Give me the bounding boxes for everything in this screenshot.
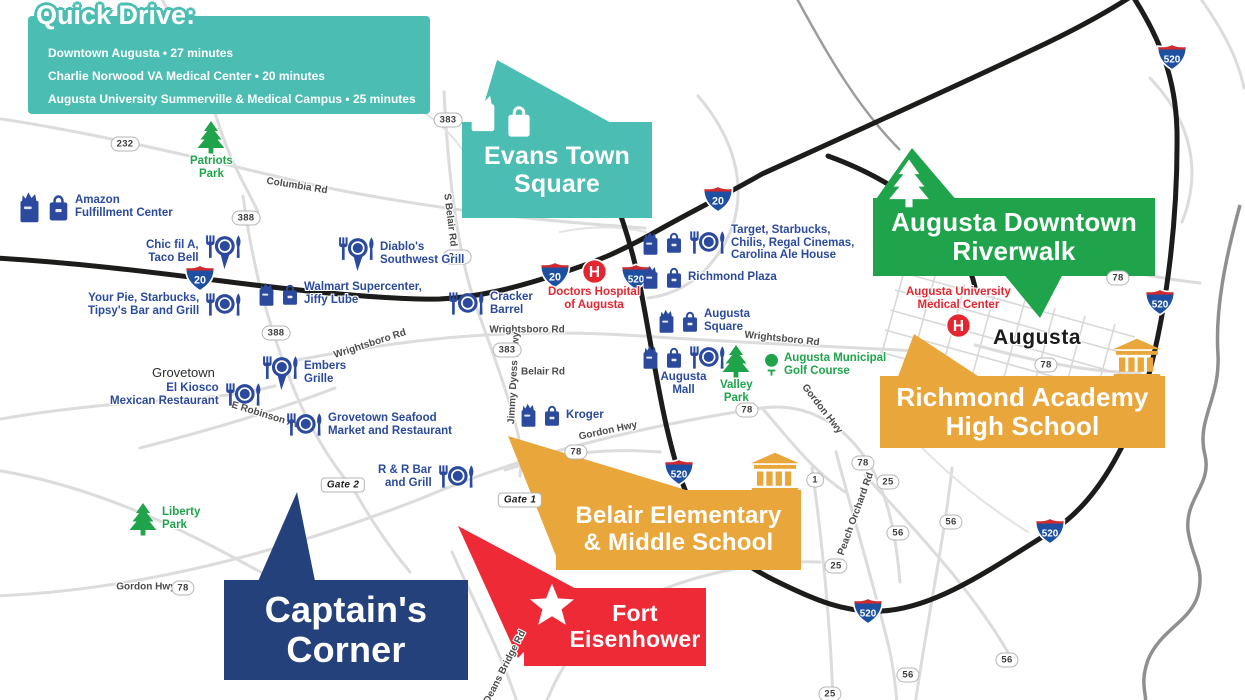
svg-text:520: 520 bbox=[671, 469, 688, 480]
poi-augusta-square: AugustaSquare bbox=[656, 308, 750, 334]
restaurant-icon bbox=[436, 464, 476, 489]
quick-drive-item: Augusta University Summerville & Medical… bbox=[48, 88, 430, 111]
road-label: Gordon Hwy bbox=[116, 582, 175, 593]
interstate-shield-520: 520 bbox=[663, 458, 696, 487]
poi-label: AugustaMall bbox=[661, 371, 707, 396]
poi-icons bbox=[203, 234, 243, 270]
poi-label: Augusta UniversityMedical Center bbox=[906, 286, 1011, 311]
poi-icons bbox=[196, 120, 226, 154]
svg-text:20: 20 bbox=[194, 274, 206, 286]
shopping-icon bbox=[46, 193, 71, 222]
school-icon bbox=[1110, 338, 1164, 380]
route-pill-78: 78 bbox=[851, 456, 874, 471]
shopping-icon bbox=[664, 346, 684, 369]
poi-label: Augusta MunicipalGolf Course bbox=[784, 352, 886, 377]
poi-icons bbox=[223, 382, 263, 407]
road-label: Wrightsboro Rd bbox=[489, 325, 564, 336]
grocery-icon bbox=[16, 190, 43, 224]
hospital-icon: H bbox=[945, 312, 972, 339]
poi-icons bbox=[336, 236, 376, 272]
poi-icons bbox=[436, 464, 476, 489]
svg-text:H: H bbox=[953, 318, 964, 335]
poi-grovetown-seafood-market: Grovetown SeafoodMarket and Restaurant bbox=[284, 412, 452, 437]
road-label: Belair Rd bbox=[521, 367, 565, 378]
riverwalk-callout-tail bbox=[1002, 272, 1064, 318]
route-pill-78: 78 bbox=[735, 403, 758, 418]
quick-drive-item: Charlie Norwood VA Medical Center • 20 m… bbox=[48, 65, 430, 88]
route-pill-1: 1 bbox=[806, 473, 824, 488]
gate-pill-gate-2: Gate 2 bbox=[321, 478, 365, 493]
poi-valley-park: ValleyPark bbox=[720, 344, 753, 404]
interstate-shield-20: 20 bbox=[702, 185, 735, 214]
restaurant-icon bbox=[223, 382, 263, 407]
poi-icons bbox=[518, 402, 562, 428]
restaurant-icon bbox=[284, 412, 324, 437]
callout-line: Augusta Downtown bbox=[873, 208, 1155, 237]
poi-doctors-hospital-of-augusta: HDoctors Hospitalof Augusta bbox=[548, 258, 640, 311]
poi-augusta-city: Augusta bbox=[993, 326, 1081, 349]
callout-line: Square bbox=[462, 170, 652, 198]
poi-diablos-southwest-grill: Diablo'sSouthwest Grill bbox=[336, 236, 464, 272]
callout-belair-elementary-middle-school: Belair Elementary & Middle School bbox=[556, 490, 801, 570]
poi-label: Target, Starbucks,Chilis, Regal Cinemas,… bbox=[731, 224, 854, 262]
restaurant-icon bbox=[203, 292, 243, 317]
callout-richmond-academy-high-school: Richmond Academy High School bbox=[880, 376, 1165, 448]
route-pill-25: 25 bbox=[824, 559, 847, 574]
route-pill-56: 56 bbox=[995, 653, 1018, 668]
callout-line: High School bbox=[880, 412, 1165, 441]
poi-icons bbox=[763, 353, 780, 377]
poi-icons bbox=[640, 230, 727, 256]
poi-augusta-municipal-golf-course: Augusta MunicipalGolf Course bbox=[763, 352, 886, 377]
route-pill-56: 56 bbox=[939, 515, 962, 530]
route-pill-383: 383 bbox=[434, 113, 463, 128]
poi-icons bbox=[16, 190, 71, 224]
interstate-shield-520: 520 bbox=[1156, 43, 1189, 72]
shopping-icon bbox=[504, 102, 534, 140]
poi-label: Kroger bbox=[566, 409, 604, 422]
grocery-icon bbox=[466, 90, 500, 134]
poi-patriots-park: PatriotsPark bbox=[190, 120, 233, 180]
route-pill-78: 78 bbox=[564, 445, 587, 460]
poi-label: Walmart Supercenter,Jiffy Lube bbox=[304, 281, 422, 306]
svg-text:20: 20 bbox=[712, 195, 724, 207]
svg-text:520: 520 bbox=[860, 608, 877, 619]
callout-line: Captain's bbox=[224, 590, 468, 630]
gate-pill-gate-1: Gate 1 bbox=[498, 493, 542, 508]
poi-icons bbox=[721, 344, 751, 378]
poi-kroger: Kroger bbox=[518, 402, 604, 428]
golf-icon bbox=[763, 353, 780, 377]
poi-cracker-barrel: CrackerBarrel bbox=[446, 291, 533, 316]
shopping-icon bbox=[664, 231, 684, 254]
interstate-shield-520: 520 bbox=[852, 597, 885, 626]
captains-callout-tail bbox=[256, 492, 316, 586]
poi-icons bbox=[656, 308, 700, 334]
poi-label: Richmond Plaza bbox=[688, 271, 777, 284]
map-canvas: Downtown Augusta • 27 minutes Charlie No… bbox=[0, 0, 1245, 700]
poi-icons bbox=[284, 412, 324, 437]
callout-captains-corner: Captain's Corner bbox=[224, 580, 468, 680]
poi-label: El KioscoMexican Restaurant bbox=[110, 382, 219, 407]
callout-line: Fort bbox=[564, 601, 706, 627]
poi-your-pie-starbucks-tipsys: Your Pie, Starbucks,Tipsy's Bar and Gril… bbox=[88, 292, 243, 317]
route-pill-56: 56 bbox=[886, 526, 909, 541]
tree-icon bbox=[886, 158, 932, 208]
poi-label: Doctors Hospitalof Augusta bbox=[548, 286, 640, 311]
route-pill-232: 232 bbox=[111, 137, 140, 152]
poi-label: EmbersGrille bbox=[304, 360, 346, 385]
restaurant-icon bbox=[446, 291, 486, 316]
poi-label: ValleyPark bbox=[720, 379, 753, 404]
grocery-icon bbox=[640, 230, 661, 256]
grocery-icon bbox=[640, 264, 661, 290]
poi-label: Your Pie, Starbucks,Tipsy's Bar and Gril… bbox=[88, 292, 199, 317]
callout-line: & Middle School bbox=[556, 530, 801, 557]
callout-line: Riverwalk bbox=[873, 237, 1155, 266]
route-pill-78: 78 bbox=[1106, 271, 1129, 286]
svg-text:520: 520 bbox=[1152, 299, 1169, 310]
quick-drive-title: Quick Drive: bbox=[36, 0, 195, 31]
svg-text:520: 520 bbox=[1042, 528, 1059, 539]
poi-chic-fil-a-taco-bell: Chic fil A,Taco Bell bbox=[146, 234, 243, 270]
callout-line: Belair Elementary bbox=[556, 503, 801, 530]
poi-label: LibertyPark bbox=[162, 506, 200, 531]
callout-line: Eisenhower bbox=[564, 627, 706, 653]
poi-r-and-r-bar-and-grill: R & R Barand Grill bbox=[378, 464, 476, 489]
grocery-icon bbox=[256, 281, 277, 307]
poi-icons bbox=[256, 281, 300, 307]
route-pill-25: 25 bbox=[818, 687, 841, 700]
route-pill-78: 78 bbox=[171, 581, 194, 596]
callout-augusta-downtown-riverwalk: Augusta Downtown Riverwalk bbox=[873, 198, 1155, 276]
poi-liberty-park: LibertyPark bbox=[128, 502, 200, 536]
grocery-icon bbox=[640, 344, 661, 370]
grocery-icon bbox=[518, 402, 539, 428]
poi-label: AugustaSquare bbox=[704, 308, 750, 333]
poi-icons: H bbox=[945, 312, 972, 339]
poi-icons bbox=[640, 344, 727, 370]
poi-label: Grovetown SeafoodMarket and Restaurant bbox=[328, 412, 452, 437]
poi-label: Grovetown bbox=[152, 366, 215, 380]
tree-icon bbox=[721, 344, 751, 378]
tree-icon bbox=[128, 502, 158, 536]
tree-icon bbox=[196, 120, 226, 154]
poi-target-starbucks-chilis: Target, Starbucks,Chilis, Regal Cinemas,… bbox=[640, 224, 854, 262]
school-icon bbox=[748, 452, 802, 494]
poi-label: Chic fil A,Taco Bell bbox=[146, 239, 199, 264]
svg-text:520: 520 bbox=[1164, 54, 1181, 65]
shopping-icon bbox=[280, 283, 300, 306]
poi-walmart-supercenter-jiffy-lube: Walmart Supercenter,Jiffy Lube bbox=[256, 281, 422, 307]
poi-richmond-plaza: Richmond Plaza bbox=[640, 264, 777, 290]
poi-label: Diablo'sSouthwest Grill bbox=[380, 241, 464, 266]
shopping-icon bbox=[664, 266, 684, 289]
shopping-icon bbox=[680, 310, 700, 333]
poi-label: R & R Barand Grill bbox=[378, 464, 432, 489]
poi-amazon-fulfillment-center: AmazonFulfillment Center bbox=[16, 190, 173, 224]
interstate-shield-520: 520 bbox=[1144, 288, 1177, 317]
svg-text:H: H bbox=[588, 264, 599, 281]
route-pill-383: 383 bbox=[493, 343, 522, 358]
poi-label: AmazonFulfillment Center bbox=[75, 194, 173, 219]
callout-line: Richmond Academy bbox=[880, 383, 1165, 412]
restaurant-pin-icon bbox=[203, 234, 243, 270]
route-pill-388: 388 bbox=[262, 326, 291, 341]
restaurant-icon bbox=[687, 230, 727, 255]
callout-line: Evans Town bbox=[462, 142, 652, 170]
poi-icons bbox=[260, 355, 300, 391]
poi-icons: H bbox=[581, 258, 608, 285]
quick-drive-item: Downtown Augusta • 27 minutes bbox=[48, 42, 430, 65]
route-pill-78: 78 bbox=[1034, 358, 1057, 373]
hospital-icon: H bbox=[581, 258, 608, 285]
poi-label: CrackerBarrel bbox=[490, 291, 533, 316]
shopping-icon bbox=[542, 404, 562, 427]
poi-el-kiosco-mexican-restaurant: El KioscoMexican Restaurant bbox=[110, 382, 263, 407]
star-icon bbox=[528, 582, 576, 628]
poi-grovetown-city: Grovetown bbox=[152, 366, 215, 380]
callout-line: Corner bbox=[224, 630, 468, 670]
interstate-shield-520: 520 bbox=[1034, 517, 1067, 546]
restaurant-pin-icon bbox=[336, 236, 376, 272]
poi-label: Augusta bbox=[993, 326, 1081, 349]
restaurant-pin-icon bbox=[260, 355, 300, 391]
route-pill-388: 388 bbox=[232, 211, 261, 226]
poi-augusta-mall: AugustaMall bbox=[640, 344, 727, 396]
poi-icons bbox=[203, 292, 243, 317]
poi-icons bbox=[128, 502, 158, 536]
poi-embers-grille: EmbersGrille bbox=[260, 355, 346, 391]
poi-label: PatriotsPark bbox=[190, 155, 233, 180]
route-pill-25: 25 bbox=[876, 475, 899, 490]
callout-evans-town-square: Evans Town Square bbox=[462, 122, 652, 218]
poi-icons bbox=[640, 264, 684, 290]
route-pill-56: 56 bbox=[896, 668, 919, 683]
poi-icons bbox=[446, 291, 486, 316]
grocery-icon bbox=[656, 308, 677, 334]
